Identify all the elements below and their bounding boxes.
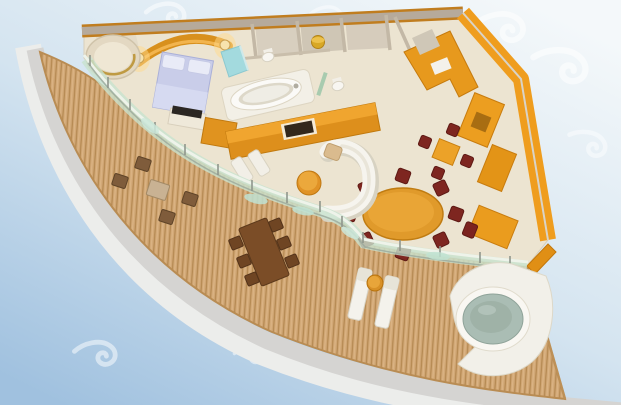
gold-pedestal-top — [312, 37, 325, 43]
suite-floorplan-render — [0, 0, 621, 405]
round-lounge-nook-inner — [94, 42, 132, 72]
ottoman-top — [299, 172, 318, 191]
dining-table-top — [368, 192, 434, 232]
whirlpool-water-highlight — [478, 305, 496, 315]
lounger-side-table-top — [368, 276, 380, 288]
scene-root — [0, 0, 621, 405]
suite-floorplan — [0, 0, 621, 405]
bathtub-faucet — [294, 84, 299, 89]
sconce-light — [220, 40, 230, 50]
